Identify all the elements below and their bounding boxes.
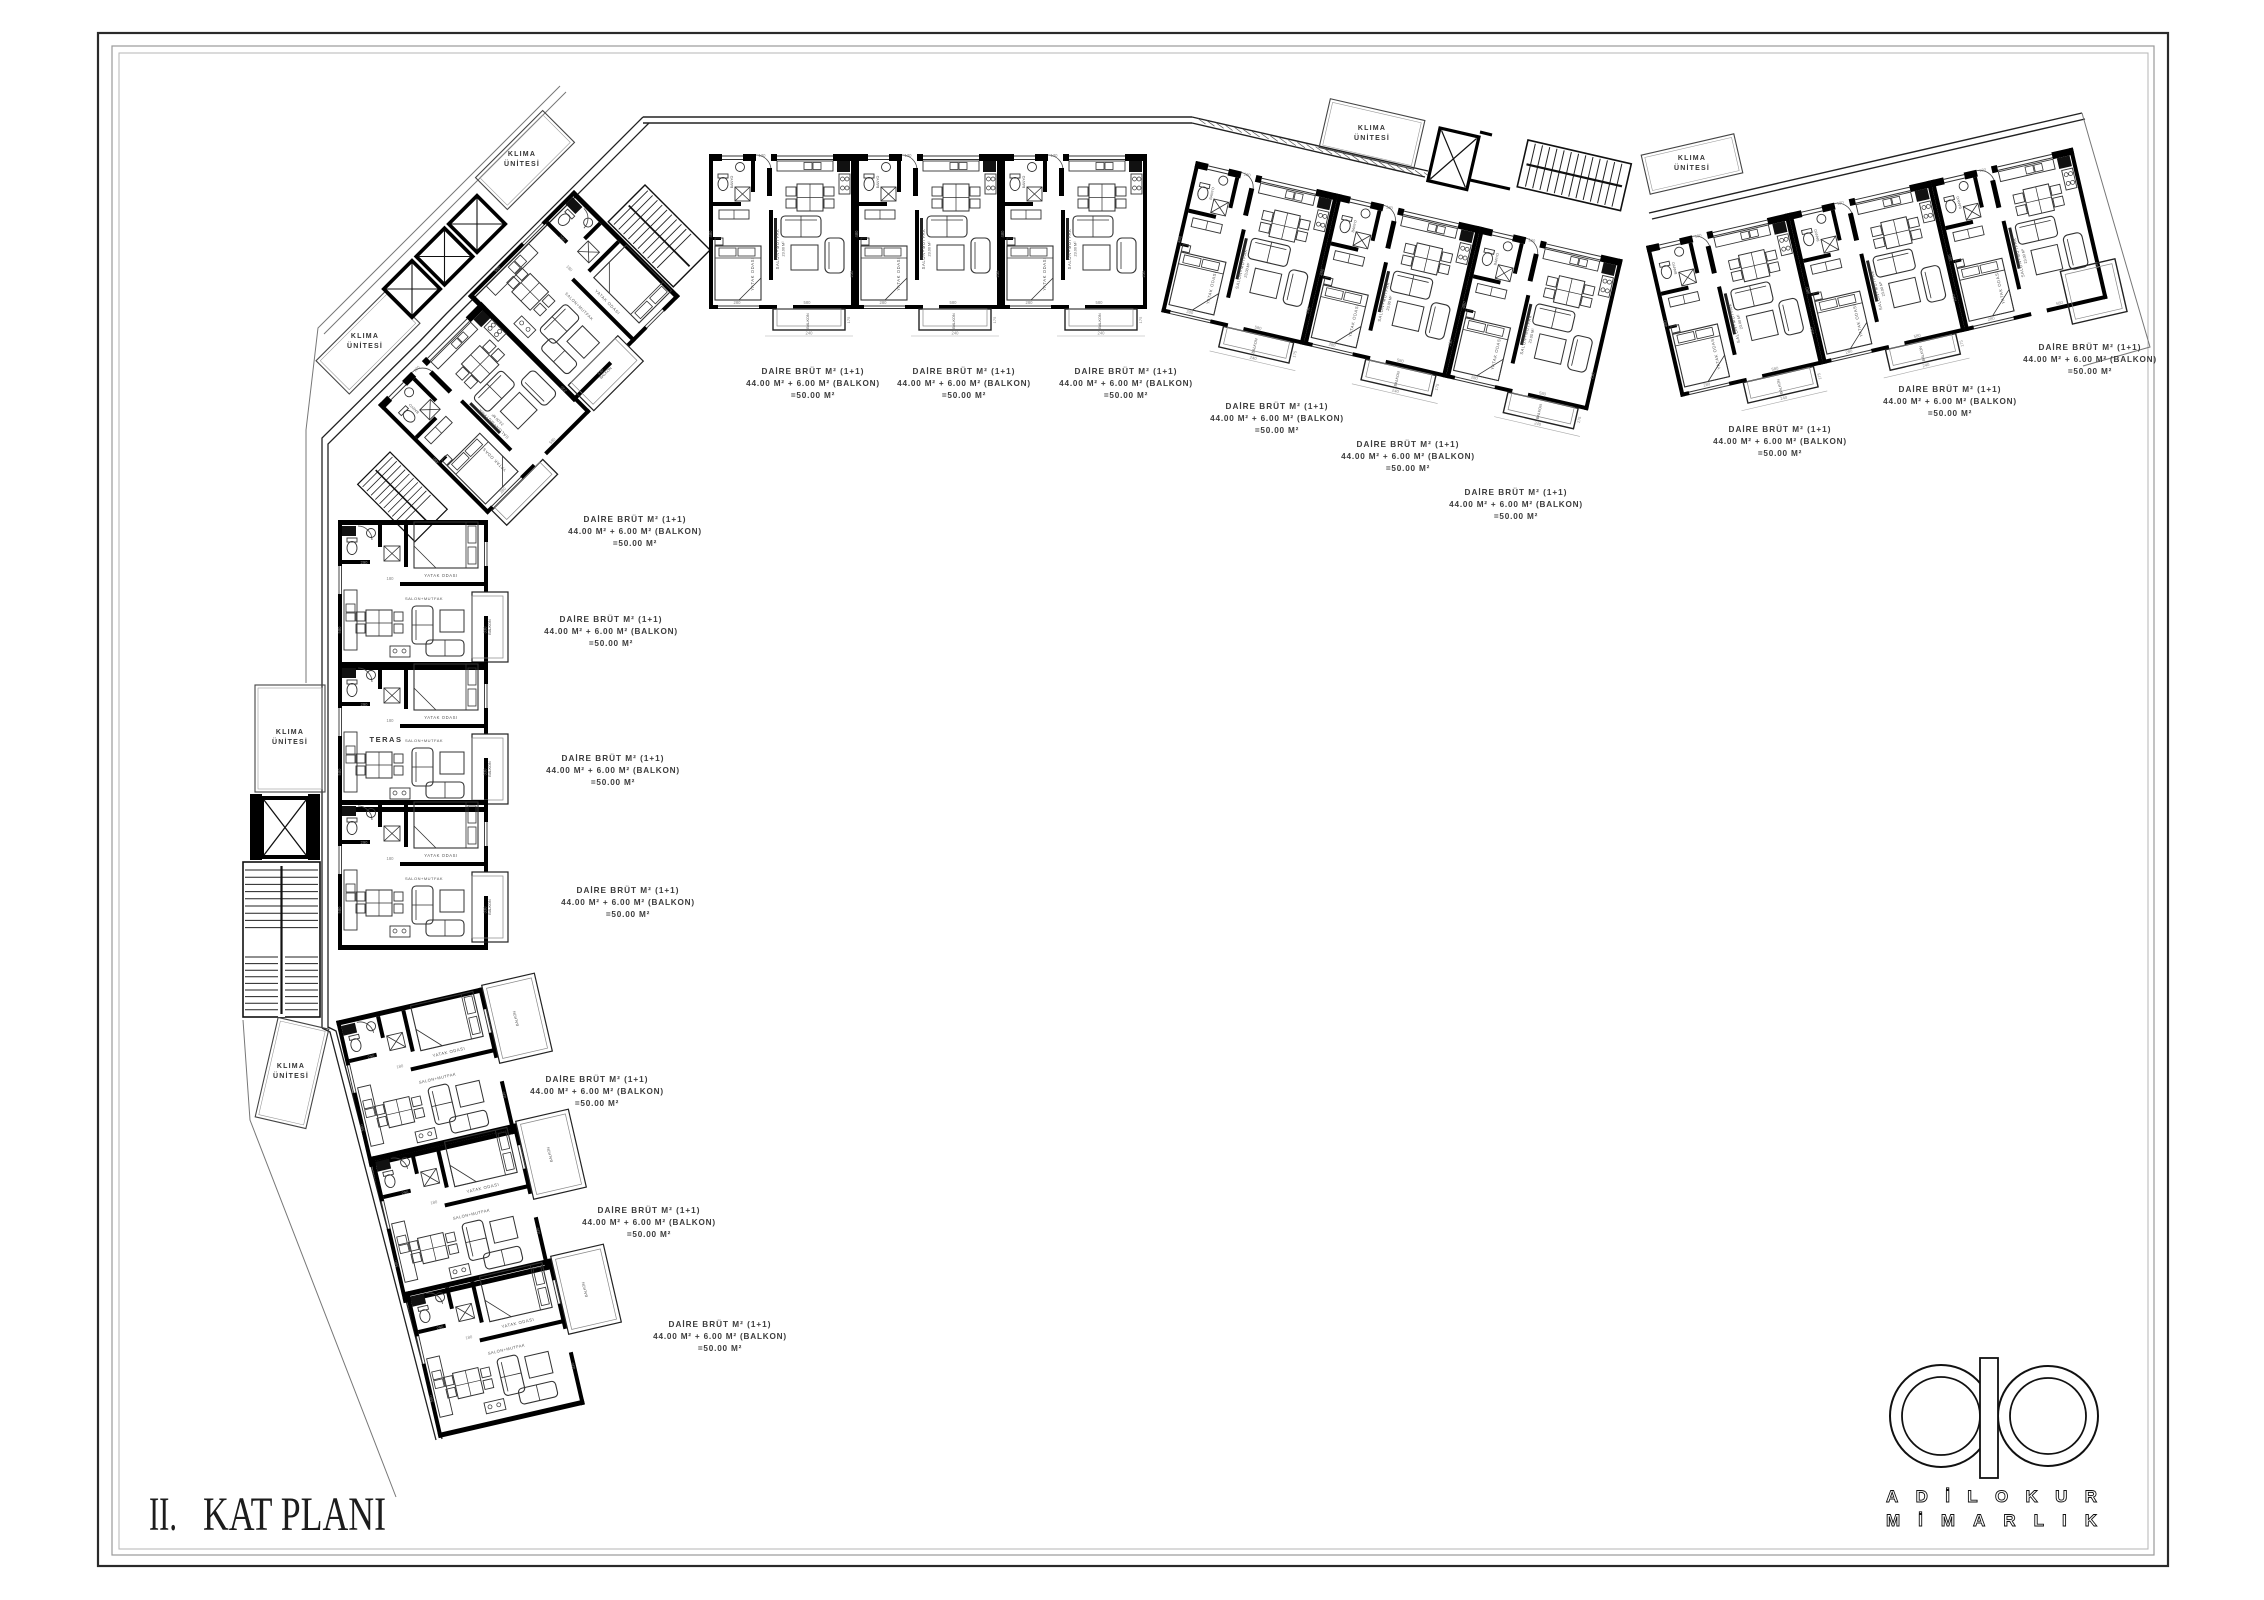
- svg-text:DAİRE BRÜT M² (1+1): DAİRE BRÜT M² (1+1): [546, 1074, 649, 1084]
- svg-text:=50.00 M²: =50.00 M²: [575, 1099, 619, 1108]
- svg-text:=50.00 M²: =50.00 M²: [1386, 464, 1430, 473]
- svg-text:DAİRE BRÜT M² (1+1): DAİRE BRÜT M² (1+1): [584, 514, 687, 524]
- svg-text:44.00 M² + 6.00 M² (BALKON): 44.00 M² + 6.00 M² (BALKON): [1449, 500, 1583, 509]
- svg-text:DAİRE BRÜT M² (1+1): DAİRE BRÜT M² (1+1): [598, 1205, 701, 1215]
- svg-text:=50.00 M²: =50.00 M²: [791, 391, 835, 400]
- svg-text:KLIMA: KLIMA: [1678, 155, 1706, 162]
- svg-text:44.00 M² + 6.00 M² (BALKON): 44.00 M² + 6.00 M² (BALKON): [2023, 355, 2157, 364]
- svg-text:44.00 M² + 6.00 M² (BALKON): 44.00 M² + 6.00 M² (BALKON): [568, 527, 702, 536]
- svg-text:DAİRE BRÜT M² (1+1): DAİRE BRÜT M² (1+1): [2039, 342, 2142, 352]
- svg-text:KLIMA: KLIMA: [351, 333, 379, 340]
- svg-text:44.00 M² + 6.00 M² (BALKON): 44.00 M² + 6.00 M² (BALKON): [1210, 414, 1344, 423]
- svg-text:KAT PLANI: KAT PLANI: [203, 1488, 386, 1541]
- svg-text:DAİRE BRÜT M² (1+1): DAİRE BRÜT M² (1+1): [1075, 366, 1178, 376]
- svg-text:44.00 M² + 6.00 M² (BALKON): 44.00 M² + 6.00 M² (BALKON): [653, 1332, 787, 1341]
- svg-text:=50.00 M²: =50.00 M²: [591, 778, 635, 787]
- svg-text:DAİRE BRÜT M² (1+1): DAİRE BRÜT M² (1+1): [1899, 384, 2002, 394]
- svg-text:KLIMA: KLIMA: [277, 1063, 305, 1070]
- svg-text:DAİRE BRÜT M² (1+1): DAİRE BRÜT M² (1+1): [1226, 401, 1329, 411]
- svg-text:DAİRE BRÜT M² (1+1): DAİRE BRÜT M² (1+1): [913, 366, 1016, 376]
- svg-text:DAİRE BRÜT M² (1+1): DAİRE BRÜT M² (1+1): [1465, 487, 1568, 497]
- svg-text:II.: II.: [149, 1488, 177, 1541]
- svg-text:=50.00 M²: =50.00 M²: [1758, 449, 1802, 458]
- svg-text:44.00 M² + 6.00 M² (BALKON): 44.00 M² + 6.00 M² (BALKON): [1713, 437, 1847, 446]
- svg-text:44.00 M² + 6.00 M² (BALKON): 44.00 M² + 6.00 M² (BALKON): [582, 1218, 716, 1227]
- svg-text:44.00 M² + 6.00 M² (BALKON): 44.00 M² + 6.00 M² (BALKON): [544, 627, 678, 636]
- svg-text:DAİRE BRÜT M² (1+1): DAİRE BRÜT M² (1+1): [577, 885, 680, 895]
- svg-text:=50.00 M²: =50.00 M²: [627, 1230, 671, 1239]
- svg-text:44.00 M² + 6.00 M² (BALKON): 44.00 M² + 6.00 M² (BALKON): [546, 766, 680, 775]
- svg-text:44.00 M² + 6.00 M² (BALKON): 44.00 M² + 6.00 M² (BALKON): [746, 379, 880, 388]
- svg-text:DAİRE BRÜT M² (1+1): DAİRE BRÜT M² (1+1): [1729, 424, 1832, 434]
- svg-text:=50.00 M²: =50.00 M²: [606, 910, 650, 919]
- svg-text:DAİRE BRÜT M² (1+1): DAİRE BRÜT M² (1+1): [1357, 439, 1460, 449]
- svg-text:ÜNİTESİ: ÜNİTESİ: [347, 341, 383, 350]
- svg-text:44.00 M² + 6.00 M² (BALKON): 44.00 M² + 6.00 M² (BALKON): [897, 379, 1031, 388]
- svg-text:44.00 M² + 6.00 M² (BALKON): 44.00 M² + 6.00 M² (BALKON): [1341, 452, 1475, 461]
- svg-text:DAİRE BRÜT M² (1+1): DAİRE BRÜT M² (1+1): [560, 614, 663, 624]
- svg-text:DAİRE BRÜT M² (1+1): DAİRE BRÜT M² (1+1): [562, 753, 665, 763]
- svg-text:=50.00 M²: =50.00 M²: [1255, 426, 1299, 435]
- svg-text:KLIMA: KLIMA: [1358, 125, 1386, 132]
- svg-text:=50.00 M²: =50.00 M²: [1494, 512, 1538, 521]
- svg-text:=50.00 M²: =50.00 M²: [942, 391, 986, 400]
- svg-text:44.00 M² + 6.00 M² (BALKON): 44.00 M² + 6.00 M² (BALKON): [561, 898, 695, 907]
- svg-text:TERAS: TERAS: [370, 735, 403, 744]
- svg-text:ÜNİTESİ: ÜNİTESİ: [272, 737, 308, 746]
- svg-text:=50.00 M²: =50.00 M²: [2068, 367, 2112, 376]
- svg-text:=50.00 M²: =50.00 M²: [589, 639, 633, 648]
- svg-text:=50.00 M²: =50.00 M²: [1928, 409, 1972, 418]
- svg-text:ÜNİTESİ: ÜNİTESİ: [1674, 163, 1710, 172]
- svg-text:KLIMA: KLIMA: [276, 729, 304, 736]
- svg-text:=50.00 M²: =50.00 M²: [698, 1344, 742, 1353]
- svg-text:44.00 M² + 6.00 M² (BALKON): 44.00 M² + 6.00 M² (BALKON): [1059, 379, 1193, 388]
- svg-text:DAİRE BRÜT M² (1+1): DAİRE BRÜT M² (1+1): [669, 1319, 772, 1329]
- svg-text:44.00 M² + 6.00 M² (BALKON): 44.00 M² + 6.00 M² (BALKON): [530, 1087, 664, 1096]
- svg-text:DAİRE BRÜT M² (1+1): DAİRE BRÜT M² (1+1): [762, 366, 865, 376]
- svg-text:44.00 M² + 6.00 M² (BALKON): 44.00 M² + 6.00 M² (BALKON): [1883, 397, 2017, 406]
- svg-text:ÜNİTESİ: ÜNİTESİ: [1354, 133, 1390, 142]
- svg-text:ÜNİTESİ: ÜNİTESİ: [273, 1071, 309, 1080]
- svg-text:KLIMA: KLIMA: [508, 151, 536, 158]
- svg-text:ÜNİTESİ: ÜNİTESİ: [504, 159, 540, 168]
- svg-text:=50.00 M²: =50.00 M²: [1104, 391, 1148, 400]
- svg-text:=50.00 M²: =50.00 M²: [613, 539, 657, 548]
